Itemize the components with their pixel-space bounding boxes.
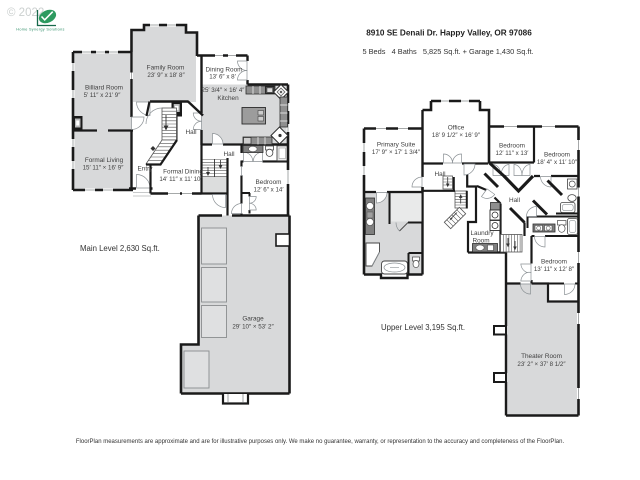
svg-text:Theater Room: Theater Room xyxy=(521,353,562,360)
svg-text:14′ 11″ x 11′ 10″: 14′ 11″ x 11′ 10″ xyxy=(159,176,203,183)
svg-text:Home Synergy Solutions: Home Synergy Solutions xyxy=(16,28,64,32)
svg-text:29′ 10″ × 53′ 2″: 29′ 10″ × 53′ 2″ xyxy=(232,324,274,331)
svg-text:Hall: Hall xyxy=(509,197,520,204)
svg-text:Garage: Garage xyxy=(242,316,264,323)
svg-text:12′ 11″ x 13′: 12′ 11″ x 13′ xyxy=(496,150,530,157)
svg-text:Family Room: Family Room xyxy=(147,65,185,72)
svg-text:8910 SE Denali Dr. Happy Valle: 8910 SE Denali Dr. Happy Valley, OR 9708… xyxy=(366,29,532,38)
svg-text:Kitchen: Kitchen xyxy=(217,95,239,102)
svg-text:Laundry: Laundry xyxy=(470,230,494,237)
svg-text:Entry: Entry xyxy=(138,166,154,173)
svg-text:Hall: Hall xyxy=(223,151,234,158)
svg-text:18′ 4″ x 11′ 10″: 18′ 4″ x 11′ 10″ xyxy=(537,159,578,166)
svg-text:Upper Level 3,195 Sq.ft.: Upper Level 3,195 Sq.ft. xyxy=(381,323,465,332)
svg-text:Bedroom: Bedroom xyxy=(541,259,567,266)
svg-text:Bedroom: Bedroom xyxy=(544,152,570,159)
svg-text:Bedroom: Bedroom xyxy=(256,179,282,186)
svg-text:Formal Dining: Formal Dining xyxy=(163,169,203,176)
svg-text:25′ 3/4″ × 16′ 4″: 25′ 3/4″ × 16′ 4″ xyxy=(202,87,246,94)
svg-text:5′ 11″ x 21′ 9″: 5′ 11″ x 21′ 9″ xyxy=(84,92,122,99)
svg-text:Office: Office xyxy=(448,125,465,132)
svg-text:Dining Room: Dining Room xyxy=(206,67,243,74)
svg-text:© 2022: © 2022 xyxy=(7,7,44,19)
svg-text:Bedroom: Bedroom xyxy=(499,143,525,150)
svg-text:FloorPlan measurements are app: FloorPlan measurements are approximate a… xyxy=(76,439,565,445)
svg-text:Room: Room xyxy=(472,238,489,245)
svg-text:Hall: Hall xyxy=(185,129,196,136)
svg-text:5 Beds 4 Baths 5,825 Sq.ft: 5 Beds 4 Baths 5,825 Sq.ft. + Garage 1,4… xyxy=(362,47,533,56)
svg-text:18′ 9 1/2″ × 16′ 9″: 18′ 9 1/2″ × 16′ 9″ xyxy=(432,132,481,139)
svg-text:17′ 9″ × 17′ 1 3/4″: 17′ 9″ × 17′ 1 3/4″ xyxy=(372,149,421,156)
svg-text:23′ 9″ x 18′ 8″: 23′ 9″ x 18′ 8″ xyxy=(147,72,185,79)
svg-text:13′ 6″ x 8′: 13′ 6″ x 8′ xyxy=(209,74,236,81)
svg-text:Primary Suite: Primary Suite xyxy=(377,142,416,149)
svg-text:12′ 6″ x 14′: 12′ 6″ x 14′ xyxy=(254,187,285,194)
svg-text:15′ 11″ × 16′ 9″: 15′ 11″ × 16′ 9″ xyxy=(83,165,125,172)
svg-text:Billiard Room: Billiard Room xyxy=(85,85,123,92)
svg-text:Hall: Hall xyxy=(434,171,445,178)
svg-text:23′ 2″ × 37′ 8 1/2″: 23′ 2″ × 37′ 8 1/2″ xyxy=(517,361,566,368)
svg-text:13′ 11″ x 12′ 8″: 13′ 11″ x 12′ 8″ xyxy=(534,266,575,273)
svg-text:Formal Living: Formal Living xyxy=(85,157,124,164)
svg-text:Main Level 2,630 Sq.ft.: Main Level 2,630 Sq.ft. xyxy=(80,244,160,253)
